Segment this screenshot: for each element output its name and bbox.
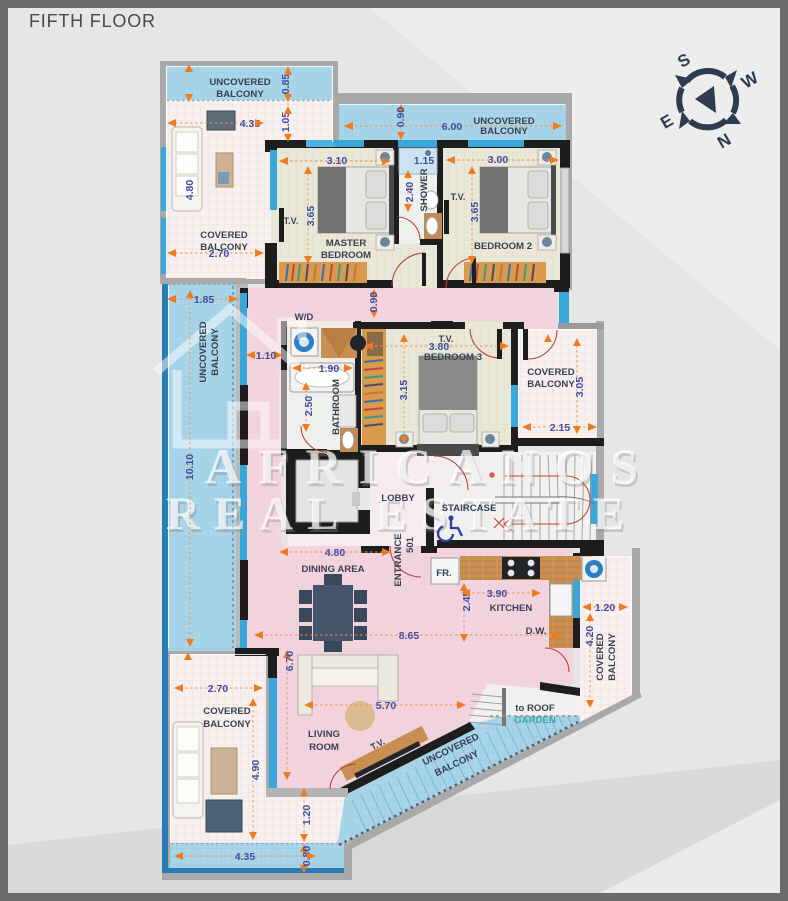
svg-text:2.50: 2.50: [303, 396, 315, 417]
svg-text:8.65: 8.65: [399, 630, 420, 642]
svg-text:COVERED: COVERED: [527, 367, 575, 378]
svg-text:3.90: 3.90: [487, 588, 508, 600]
svg-text:FIFTH FLOOR: FIFTH FLOOR: [29, 11, 156, 31]
svg-text:LOBBY: LOBBY: [381, 493, 415, 504]
svg-text:UNCOVERED: UNCOVERED: [209, 77, 270, 88]
svg-text:GARDEN: GARDEN: [514, 715, 556, 726]
svg-text:1.05: 1.05: [280, 112, 292, 133]
svg-text:LIVING: LIVING: [308, 729, 340, 740]
svg-text:1.20: 1.20: [595, 602, 616, 614]
svg-text:BEDROOM: BEDROOM: [321, 250, 371, 261]
svg-text:6.70: 6.70: [284, 651, 296, 672]
svg-text:1.85: 1.85: [194, 294, 215, 306]
svg-text:UNCOVERED: UNCOVERED: [198, 321, 209, 382]
svg-text:6.00: 6.00: [442, 121, 463, 133]
svg-text:STAIRCASE: STAIRCASE: [442, 503, 497, 514]
svg-text:T.V.: T.V.: [284, 216, 299, 226]
svg-text:D.W.: D.W.: [526, 626, 547, 637]
svg-text:BALCONY: BALCONY: [203, 719, 251, 730]
svg-text:BALCONY: BALCONY: [216, 89, 264, 100]
svg-text:T.V.: T.V.: [451, 192, 466, 202]
svg-text:501: 501: [405, 536, 416, 553]
svg-text:4.90: 4.90: [250, 760, 262, 781]
svg-text:2.40: 2.40: [404, 182, 416, 203]
svg-text:BATHROOM: BATHROOM: [331, 379, 342, 435]
svg-text:0.85: 0.85: [280, 74, 292, 95]
svg-text:3.05: 3.05: [574, 377, 586, 398]
svg-text:DINING AREA: DINING AREA: [301, 564, 364, 575]
svg-text:2.70: 2.70: [208, 683, 229, 695]
svg-text:KITCHEN: KITCHEN: [490, 603, 533, 614]
svg-text:3.65: 3.65: [305, 206, 317, 227]
svg-text:10.10: 10.10: [184, 454, 196, 480]
svg-text:4.80: 4.80: [325, 547, 346, 559]
svg-text:COVERED: COVERED: [203, 706, 251, 717]
svg-text:4.35: 4.35: [235, 851, 256, 863]
svg-text:3.65: 3.65: [469, 202, 481, 223]
svg-text:BEDROOM 2: BEDROOM 2: [474, 241, 532, 252]
svg-text:W/D: W/D: [295, 312, 314, 323]
svg-text:5.70: 5.70: [376, 700, 397, 712]
svg-text:3.15: 3.15: [398, 380, 410, 401]
svg-text:1.90: 1.90: [319, 363, 340, 375]
svg-text:2.15: 2.15: [550, 422, 571, 434]
svg-text:to ROOF: to ROOF: [515, 703, 555, 714]
svg-text:3.00: 3.00: [488, 154, 509, 166]
svg-text:BALCONY: BALCONY: [200, 242, 248, 253]
svg-text:T.V.: T.V.: [439, 334, 454, 344]
svg-text:COVERED: COVERED: [595, 633, 606, 681]
svg-text:1.15: 1.15: [414, 155, 435, 167]
svg-text:1.10: 1.10: [256, 350, 277, 362]
svg-text:0.90: 0.90: [368, 292, 380, 313]
svg-text:4.80: 4.80: [184, 180, 196, 201]
svg-text:ROOM: ROOM: [309, 742, 339, 753]
svg-text:1.20: 1.20: [301, 805, 313, 826]
svg-text:AFRICANOS: AFRICANOS: [205, 438, 655, 494]
svg-text:MASTER: MASTER: [326, 238, 367, 249]
svg-text:ENTRANCE: ENTRANCE: [393, 533, 404, 587]
svg-text:0.90: 0.90: [395, 107, 407, 128]
svg-text:COVERED: COVERED: [200, 230, 248, 241]
svg-text:FR.: FR.: [436, 568, 451, 579]
svg-text:BEDROOM 3: BEDROOM 3: [424, 352, 482, 363]
svg-text:SHOWER: SHOWER: [419, 168, 430, 211]
svg-text:BALCONY: BALCONY: [480, 126, 528, 137]
svg-text:BALCONY: BALCONY: [210, 328, 221, 376]
svg-text:BALCONY: BALCONY: [607, 633, 618, 681]
svg-text:BALCONY: BALCONY: [527, 379, 575, 390]
svg-text:3.10: 3.10: [327, 155, 348, 167]
